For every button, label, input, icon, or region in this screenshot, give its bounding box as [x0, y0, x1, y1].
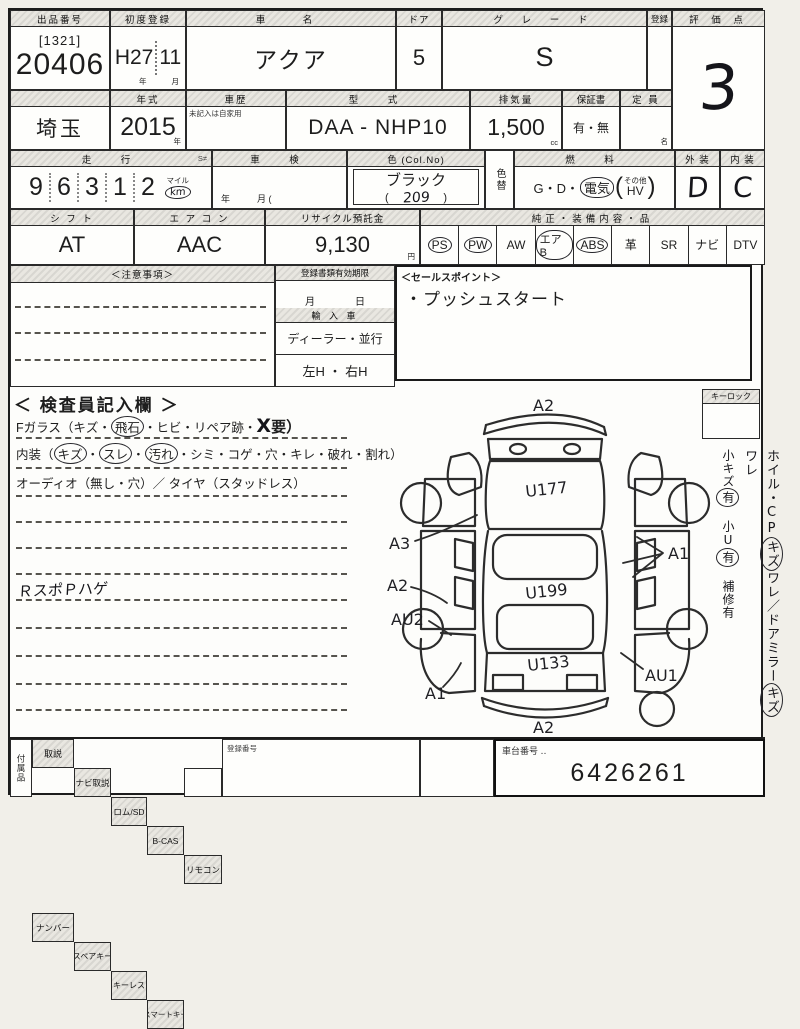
accessory-manual: 取説 — [32, 739, 74, 768]
car-history-note: 未記入は自家用 — [189, 108, 242, 119]
damage-code-left-1: A3 — [389, 534, 410, 553]
prefecture-header — [11, 91, 109, 107]
accessory-spare-key: スペアキー — [74, 942, 111, 971]
first-registration-cell: 初度登録 H27 11 年 月 — [110, 10, 186, 90]
fuel-paren-close: ) — [648, 173, 656, 201]
color-no-paren: ( — [385, 192, 389, 204]
interior-grade-cell: 内 装 C — [720, 150, 765, 209]
audio-tire-text: オーディオ（無し・穴）／ タイヤ（スタッドレス） — [16, 477, 306, 491]
car-name-header: 車 名 — [187, 11, 395, 27]
mileage-digit: 6 — [51, 173, 79, 202]
damage-code-rear-bottom: A2 — [533, 718, 554, 736]
damage-code-bottom-left: A1 — [425, 684, 446, 703]
car-history-cell: 車歴 未記入は自家用 — [186, 90, 286, 150]
dashed-line — [16, 683, 347, 685]
left-side-panels — [401, 453, 482, 693]
model-code: DAA - NHP10 — [308, 116, 447, 140]
sales-point-box: ＜セールスポイント＞ ・プッシュスタート — [395, 265, 752, 381]
first-reg-era: H27 — [115, 46, 154, 70]
documents-cell: 登録書類有効期限 月 日 輸 入 車 ディーラー・並行 左H ・ 右H — [275, 265, 395, 387]
recycle-fee-value: 9,130 — [315, 232, 370, 258]
fuel-paren-open: ( — [615, 173, 623, 201]
mileage-digit: 2 — [135, 173, 161, 202]
model-year: 2015 — [120, 113, 176, 142]
score-header: 評 価 点 — [673, 11, 764, 27]
front-glass-text: 要） — [271, 419, 301, 436]
model-code-cell: 型 式 DAA - NHP10 — [286, 90, 470, 150]
warranty-value: 有・無 — [573, 119, 609, 136]
accessory-remote: リモコン — [184, 855, 222, 884]
right-side-panels — [629, 453, 710, 693]
first-reg-year-unit: 年 — [139, 76, 147, 87]
recycle-fee-cell: リサイクル預託金 9,130 円 — [265, 209, 420, 265]
dot: ・ — [132, 448, 145, 462]
equipment-header: 純正・装備内容・品 — [421, 210, 764, 226]
dot: ・ — [87, 448, 100, 462]
fuel-header: 燃 料 — [515, 151, 674, 167]
color-cell: 色 (Col.No) ブラック ( 209 ) — [347, 150, 485, 209]
dashed-line — [16, 573, 347, 575]
capacity-cell: 定 員 名 — [620, 90, 672, 150]
warranty-cell: 保証書 有・無 — [562, 90, 620, 150]
car-name-cell: 車 名 アクア — [186, 10, 396, 90]
interior-text: ・シミ・コゲ・穴・キレ・破れ・割れ） — [178, 448, 403, 462]
equip-navi: ナビ — [695, 236, 719, 253]
auction-sheet: 出品番号 [1321] 20406 初度登録 H27 11 年 月 車 名 アク… — [8, 8, 763, 795]
displacement-unit: cc — [551, 138, 559, 147]
model-year-unit: 年 — [174, 136, 182, 147]
equip-pw: PW — [464, 237, 491, 253]
scuff-circled: スレ — [99, 443, 132, 464]
inspector-memo-handwritten: ＲスポＰハゲ — [17, 577, 108, 601]
prefecture: 埼玉 — [36, 113, 84, 143]
equip-leather: 革 — [625, 236, 637, 253]
equip-aw: AW — [507, 238, 526, 252]
dashed-line — [16, 655, 347, 657]
shaken-header: 車 検 — [213, 151, 346, 167]
first-registration-header: 初度登録 — [111, 11, 185, 27]
mileage-digit: 1 — [107, 173, 135, 202]
front-glass-text: Fガラス（キズ・ — [16, 421, 111, 435]
import-dealer-option: ディーラー・並行 — [287, 330, 382, 347]
mileage-flag: S≠ — [198, 154, 207, 163]
side-note-line1: ホイル・CPキズワレ／ドアミラーキズワレ — [739, 449, 783, 729]
chassis-number-cell: 車台番号 ‥ 6426261 — [494, 739, 765, 797]
first-reg-month-unit: 月 — [172, 76, 180, 87]
model-year-cell: 年式 2015 年 — [110, 90, 186, 150]
dashed-line — [16, 627, 347, 629]
cautions-cell: ＜注意事項＞ — [10, 265, 275, 387]
equip-ps: PS — [428, 237, 452, 253]
dashed-line — [15, 332, 266, 334]
displacement-cell: 排気量 1,500 cc — [470, 90, 562, 150]
side-notes-vertical: ホイル・CPキズワレ／ドアミラーキズワレ 小キズ有 小U有 補修有 — [716, 449, 783, 729]
first-reg-month: 11 — [159, 46, 181, 70]
lot-number-cell: 出品番号 [1321] 20406 — [10, 10, 110, 90]
fuel-hv: HV — [627, 185, 644, 197]
mileage-header: 走 行 — [11, 151, 211, 167]
car-history-header: 車歴 — [187, 91, 285, 107]
equipment-cell: 純正・装備内容・品 PS PW AW エアB ABS 革 SR ナビ DTV — [420, 209, 765, 265]
wheel-scratch-circled: キズ — [760, 537, 783, 571]
accessories-label-cell: 付属品 — [10, 739, 32, 797]
door-header: ドア — [397, 11, 441, 27]
lot-number-header: 出品番号 — [11, 11, 109, 27]
damage-code-roof: U199 — [524, 580, 568, 603]
accessories-label: 付属品 — [15, 754, 27, 783]
aircon-header: エ ア コ ン — [135, 210, 264, 226]
documents-date-units: 月 日 — [305, 293, 365, 308]
model-year-header: 年式 — [111, 91, 185, 107]
front-glass-line: Fガラス（キズ・飛石・ヒビ・リペア跡・X要） — [16, 415, 301, 437]
car-top-view-diagram: A2 U177 A3 A2 AU2 U199 A1 U133 A1 AU1 A2 — [385, 391, 725, 736]
damage-code-right-1: A1 — [668, 544, 689, 563]
door-cell: ドア 5 — [396, 10, 442, 90]
displacement-header: 排気量 — [471, 91, 561, 107]
fuel-gd: G・D・ — [533, 178, 579, 197]
equip-sunroof: SR — [661, 238, 678, 252]
color-number: 209 — [402, 189, 430, 206]
interior-header: 内 装 — [721, 151, 764, 167]
exterior-grade: D — [686, 170, 709, 204]
door-count: 5 — [413, 45, 425, 71]
auction-score: 3 — [697, 50, 740, 124]
dashed-line — [15, 359, 266, 361]
front-glass-text: ・ヒビ・リペア跡・ — [144, 421, 257, 435]
color-change-label: 色替 — [492, 168, 507, 192]
model-code-header: 型 式 — [287, 91, 469, 107]
mileage-digit: 9 — [23, 173, 51, 202]
mileage-digit: 3 — [79, 173, 107, 202]
side-note-text: ワレ — [742, 449, 757, 477]
chassis-number: 6426261 — [570, 759, 688, 788]
scratch-circled: キズ — [54, 443, 87, 464]
lot-code: [1321] — [39, 33, 81, 48]
interior-grade: C — [732, 170, 753, 204]
displacement-value: 1,500 — [487, 114, 545, 141]
color-name: ブラック — [386, 169, 446, 190]
color-header: 色 (Col.No) — [348, 151, 484, 167]
accessory-bcas: B-CAS — [147, 826, 184, 855]
shift-cell: シ フ ト AT — [10, 209, 134, 265]
dashed-line — [16, 467, 347, 469]
dashed-line — [16, 709, 347, 711]
mileage-cell: 走 行 S≠ 9 6 3 1 2 マイル km — [10, 150, 212, 209]
equip-abs: ABS — [576, 237, 608, 253]
handwritten-x-mark: X — [256, 415, 271, 437]
km-unit-circled: km — [165, 186, 191, 200]
damage-code-right-2: AU1 — [645, 666, 678, 685]
exterior-grade-cell: 外 装 D — [675, 150, 720, 209]
lot-number: 20406 — [16, 48, 104, 82]
color-box: ブラック ( 209 ) — [353, 169, 479, 205]
capacity-header: 定 員 — [621, 91, 671, 107]
damage-code-rear-glass: U133 — [526, 652, 570, 675]
registration-mark-cell: 登録 — [647, 10, 672, 90]
side-note-text: ワレ／ドアミラー — [764, 571, 779, 683]
registration-number-cell: 登録番号 — [222, 739, 420, 797]
registration-mark-header: 登録 — [648, 11, 671, 27]
stain-circled: 汚れ — [145, 443, 178, 464]
shaken-units: 年 月 ( — [221, 192, 272, 205]
inspector-title: ＜ 検査員記入欄 ＞ — [14, 391, 179, 416]
documents-header: 登録書類有効期限 — [276, 266, 394, 281]
accessory-blank-cell — [184, 768, 222, 797]
interior-condition-line: 内装（キズ・スレ・汚れ・シミ・コゲ・穴・キレ・破れ・割れ） — [16, 443, 403, 464]
registration-number-header: 登録番号 — [227, 743, 257, 754]
aircon-value: AAC — [177, 232, 222, 258]
import-header: 輸 入 車 — [276, 308, 394, 323]
score-cell: 評 価 点 3 — [672, 10, 765, 150]
fuel-cell: 燃 料 G・D・ 電気 ( その他 HV ) — [514, 150, 675, 209]
damage-code-left-3: AU2 — [391, 610, 424, 629]
accessory-smart-key: スマートキー — [147, 1000, 184, 1029]
dashed-line — [16, 437, 347, 439]
color-change-cell: 色替 — [485, 150, 514, 209]
dashed-line — [16, 495, 347, 497]
aircon-cell: エ ア コ ン AAC — [134, 209, 265, 265]
damage-code-left-2: A2 — [387, 576, 408, 595]
recycle-fee-unit: 円 — [408, 251, 416, 262]
inspector-stamp-circle — [640, 692, 674, 726]
damage-code-hood: U177 — [524, 478, 568, 501]
sales-point-header: ＜セールスポイント＞ — [401, 269, 501, 284]
audio-tire-line: オーディオ（無し・穴）／ タイヤ（スタッドレス） — [16, 473, 306, 492]
side-note-text: ホイル・CP — [764, 449, 779, 537]
grade-header: グ レ ー ド — [443, 11, 646, 27]
shaken-cell: 車 検 年 月 ( — [212, 150, 347, 209]
accessory-rom-sd: ロム/SD — [111, 797, 147, 826]
dashed-line — [16, 521, 347, 523]
interior-text: 内装（ — [16, 448, 54, 462]
prefecture-cell: 埼玉 — [10, 90, 110, 150]
accessory-number-plate: ナンバー — [32, 913, 74, 942]
grade-cell: グ レ ー ド S — [442, 10, 647, 90]
capacity-unit: 名 — [661, 136, 669, 147]
sales-point-text: ・プッシュスタート — [405, 285, 567, 310]
damage-code-front-top: A2 — [533, 396, 554, 415]
equip-dtv: DTV — [733, 238, 757, 252]
inspector-area: ＜ 検査員記入欄 ＞ Fガラス（キズ・飛石・ヒビ・リペア跡・X要） 内装（キズ・… — [10, 387, 765, 739]
warranty-header: 保証書 — [563, 91, 619, 107]
shift-value: AT — [59, 232, 85, 258]
mirror-scratch-circled: キズ — [760, 683, 783, 717]
grade-value: S — [535, 42, 553, 73]
shift-header: シ フ ト — [11, 210, 133, 226]
equip-airbag: エアB — [536, 230, 573, 260]
handle-position-option: 左H ・ 右H — [302, 361, 367, 380]
cautions-header: ＜注意事項＞ — [11, 266, 274, 283]
blank-cell — [420, 739, 494, 797]
fuel-electric-circled: 電気 — [580, 177, 614, 198]
exterior-header: 外 装 — [676, 151, 719, 167]
dashed-line — [15, 306, 266, 308]
accessory-navi-manual: ナビ取説 — [74, 768, 111, 797]
recycle-fee-header: リサイクル預託金 — [266, 210, 419, 226]
accessory-keyless: キーレス — [111, 971, 147, 1000]
car-name: アクア — [254, 41, 328, 75]
mile-unit-label: マイル — [167, 175, 190, 186]
flying-stone-circled: 飛石 — [111, 416, 144, 437]
color-no-paren: ) — [443, 192, 447, 204]
dashed-line — [16, 547, 347, 549]
